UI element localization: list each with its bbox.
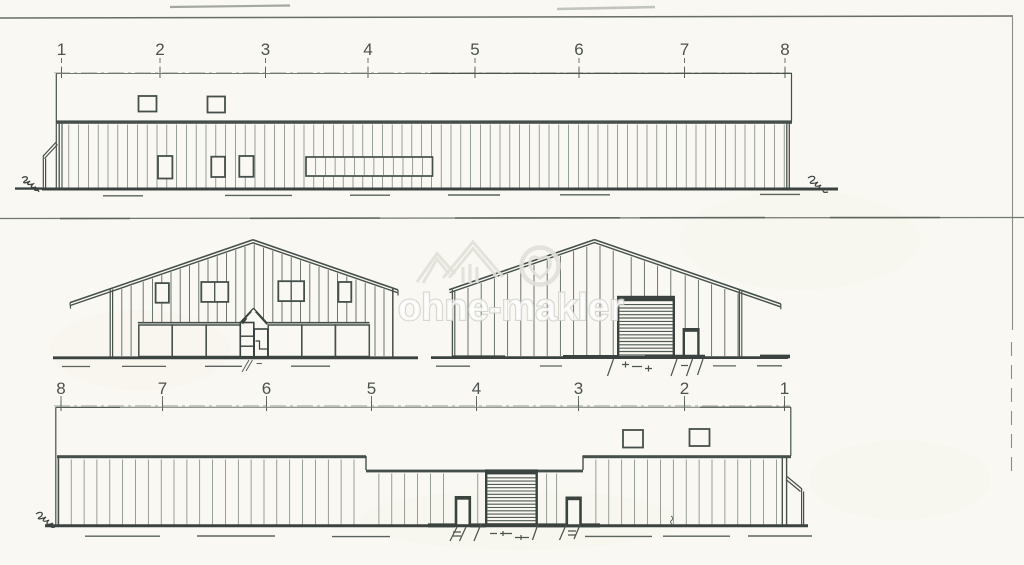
svg-text:2: 2 (680, 379, 689, 398)
svg-text:1: 1 (780, 379, 789, 398)
svg-text:3: 3 (574, 379, 583, 398)
svg-text:4: 4 (363, 40, 372, 59)
svg-text:5: 5 (367, 379, 376, 398)
svg-text:7: 7 (158, 379, 167, 398)
svg-text:7: 7 (680, 40, 689, 59)
svg-text:6: 6 (262, 379, 271, 398)
svg-text:1: 1 (57, 40, 66, 59)
svg-text:ohne-makler: ohne-makler (398, 287, 624, 329)
svg-text:5: 5 (470, 40, 479, 59)
svg-text:4: 4 (472, 379, 481, 398)
svg-text:3: 3 (261, 40, 270, 59)
svg-text:2: 2 (155, 40, 164, 59)
svg-text:6: 6 (574, 40, 583, 59)
svg-text:8: 8 (56, 379, 65, 398)
svg-text:8: 8 (780, 40, 789, 59)
